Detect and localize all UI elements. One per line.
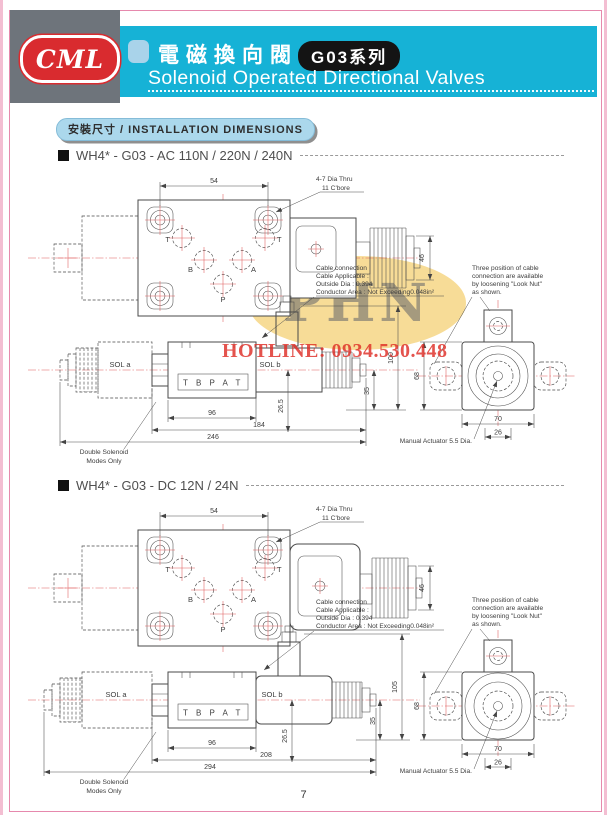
dim-end-width: 70 bbox=[494, 416, 502, 423]
double-solenoid-note-line2: Modes Only bbox=[86, 788, 122, 795]
dim-base-height: 35 bbox=[370, 717, 377, 725]
cml-logo: CML bbox=[20, 35, 120, 83]
port-label-b: B bbox=[188, 595, 193, 604]
side-view: T B P A T SOL a SOL b 96 208 294 26.5 35… bbox=[28, 626, 420, 795]
three-position-note-line4: as shown. bbox=[472, 621, 502, 628]
three-position-note-line4: as shown. bbox=[472, 289, 502, 296]
cable-note-line2: Cable Applicable : bbox=[316, 273, 369, 280]
manual-actuator-label: Manual Actuator 5.5 Dia. bbox=[400, 438, 472, 445]
dim-coil-height: 46 bbox=[419, 254, 426, 262]
port-label-a: A bbox=[251, 265, 256, 274]
dim-base-height: 35 bbox=[364, 387, 371, 395]
cable-note-line4: Conductor Area : Not Exceeding0.048in² bbox=[316, 289, 435, 296]
double-solenoid-note-line2: Modes Only bbox=[86, 458, 122, 465]
ports-box-label: T B P A T bbox=[183, 709, 243, 718]
section-title-label: WH4* - G03 - DC 12N / 24N bbox=[76, 478, 239, 493]
port-label-t-left: T bbox=[165, 565, 170, 574]
catalog-page: { "header": { "logo": "CML", "title_zh":… bbox=[0, 0, 607, 815]
dim-port-offset: 26.5 bbox=[282, 729, 289, 743]
page-title-zh: 電磁換向閥 bbox=[158, 39, 298, 69]
dim-actuator-pitch: 26 bbox=[494, 760, 502, 767]
cable-note-line2: Cable Applicable : bbox=[316, 607, 369, 614]
installation-drawing-ac: T B A T P 54 4-7 Dia Thru 11 C'bore 46 C… bbox=[20, 170, 580, 470]
valve-end-body bbox=[462, 342, 534, 410]
din-connector bbox=[278, 642, 300, 676]
valve-body-top bbox=[138, 530, 290, 646]
manual-actuator-label: Manual Actuator 5.5 Dia. bbox=[400, 768, 472, 775]
dim-bolt-pitch: 54 bbox=[210, 178, 218, 185]
top-view: T B A T P 54 4-7 Dia Thru 11 C'bore 46 bbox=[28, 176, 434, 322]
cable-note-line4: Conductor Area : Not Exceeding0.048in² bbox=[316, 623, 435, 630]
port-label-b: B bbox=[188, 265, 193, 274]
cable-note-line1: Cable connection bbox=[316, 265, 367, 272]
dim-body-len: 96 bbox=[208, 740, 216, 747]
sol-a-label: SOL a bbox=[110, 360, 132, 369]
port-label-t-left: T bbox=[165, 235, 170, 244]
installation-dimensions-banner: 安裝尺寸 / INSTALLATION DIMENSIONS bbox=[56, 118, 315, 141]
dim-end-height: 68 bbox=[414, 372, 421, 380]
header-dotted-separator bbox=[148, 90, 594, 92]
section-bullet-icon bbox=[58, 150, 69, 161]
watermark-hotline: HOTLINE: 0934.530.448 bbox=[222, 340, 448, 363]
sol-b-label: SOL b bbox=[262, 690, 283, 699]
three-position-note-line3: by loosening "Look Nut" bbox=[472, 613, 543, 620]
three-position-note-line1: Three position of cable bbox=[472, 597, 539, 604]
three-position-note-line2: connection are available bbox=[472, 605, 543, 612]
cable-note-line3: Outside Dia : 0.394 bbox=[316, 615, 373, 622]
dashed-leader bbox=[300, 155, 564, 156]
three-position-note-line3: by loosening "Look Nut" bbox=[472, 281, 543, 288]
page-subtitle-en: Solenoid Operated Directional Valves bbox=[148, 67, 485, 90]
dim-total-height: 105 bbox=[392, 681, 399, 693]
ports-box-label: T B P A T bbox=[183, 379, 243, 388]
section-title-dc: WH4* - G03 - DC 12N / 24N bbox=[58, 478, 564, 493]
three-position-note-line2: connection are available bbox=[472, 273, 543, 280]
dim-bolt-pitch: 54 bbox=[210, 508, 218, 515]
dim-overall-len: 294 bbox=[204, 764, 216, 771]
cable-note-line1: Cable connection bbox=[316, 599, 367, 606]
dim-coil-height: 46 bbox=[419, 584, 426, 592]
dim-mid-len: 184 bbox=[253, 422, 265, 429]
hole-note-line2: 11 C'bore bbox=[322, 515, 350, 522]
hole-note-line1: 4-7 Dia Thru bbox=[316, 506, 353, 513]
section-bullet-icon bbox=[58, 480, 69, 491]
hole-note-line2: 11 C'bore bbox=[322, 185, 350, 192]
coil-fins bbox=[370, 228, 406, 288]
solenoid-b bbox=[256, 676, 332, 724]
double-solenoid-note-line1: Double Solenoid bbox=[80, 779, 129, 786]
dim-mid-len: 208 bbox=[260, 752, 272, 759]
cml-logo-text: CML bbox=[36, 45, 104, 74]
double-solenoid-note-line1: Double Solenoid bbox=[80, 449, 129, 456]
dim-actuator-pitch: 26 bbox=[494, 430, 502, 437]
port-label-a: A bbox=[251, 595, 256, 604]
dim-body-len: 96 bbox=[208, 410, 216, 417]
port-label-p: P bbox=[220, 295, 225, 304]
three-position-note-line1: Three position of cable bbox=[472, 265, 539, 272]
dim-end-width: 70 bbox=[494, 746, 502, 753]
sol-a-label: SOL a bbox=[106, 690, 128, 699]
cable-note-line3: Outside Dia : 0.394 bbox=[316, 281, 373, 288]
section-title-ac: WH4* - G03 - AC 110N / 220N / 240N bbox=[58, 148, 564, 163]
dim-overall-len: 246 bbox=[207, 434, 219, 441]
page-edge-left bbox=[0, 0, 3, 815]
section-title-label: WH4* - G03 - AC 110N / 220N / 240N bbox=[76, 148, 293, 163]
dim-end-height: 68 bbox=[414, 702, 421, 710]
port-label-p: P bbox=[220, 625, 225, 634]
installation-drawing-dc: T B A T P 54 4-7 Dia Thru 11 C'bore 46 C… bbox=[20, 500, 580, 800]
dashed-leader bbox=[246, 485, 564, 486]
port-label-t-right: T bbox=[277, 565, 282, 574]
valve-body-side bbox=[168, 672, 256, 728]
hole-note-line1: 4-7 Dia Thru bbox=[316, 176, 353, 183]
valve-body-top bbox=[138, 200, 290, 316]
port-label-t-right: T bbox=[277, 235, 282, 244]
dim-port-offset: 26.5 bbox=[278, 399, 285, 413]
series-square-icon bbox=[128, 40, 149, 63]
